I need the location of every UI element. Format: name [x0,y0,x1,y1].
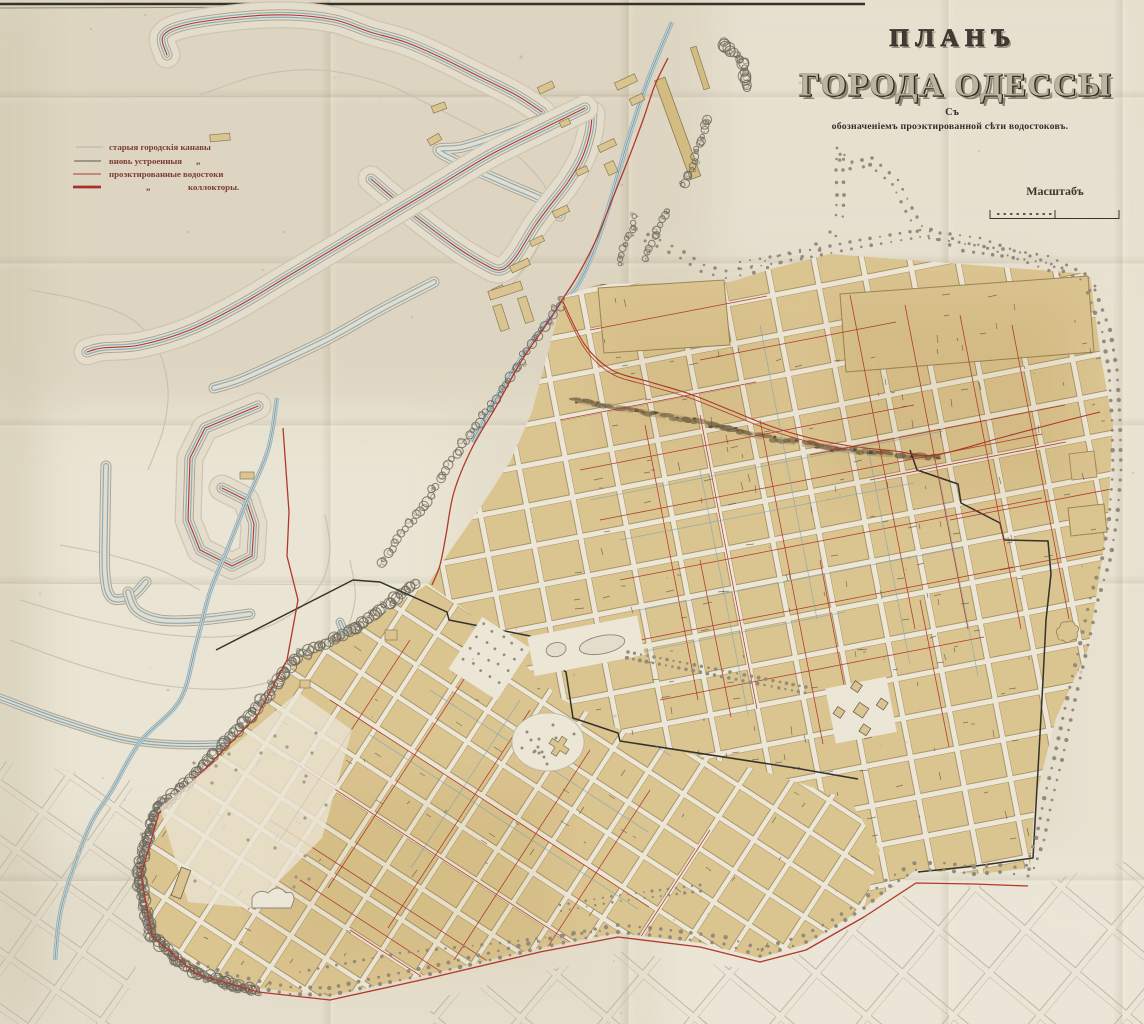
svg-text:„: „ [196,156,200,166]
svg-text:ПЛАНЪ: ПЛАНЪ [889,25,1016,52]
svg-text:Масштабъ: Масштабъ [1026,184,1084,198]
svg-text:„: „ [146,182,150,192]
svg-text:коллокторы.: коллокторы. [188,182,239,192]
svg-text:старыя городскія канавы: старыя городскія канавы [109,142,211,152]
svg-text:проэктированные водостоки: проэктированные водостоки [109,169,223,179]
svg-text:ГОРОДА ОДЕССЫ: ГОРОДА ОДЕССЫ [799,67,1112,103]
svg-text:обозначеніемъ проэктированной: обозначеніемъ проэктированной сѣти водос… [832,121,1069,132]
svg-text:вновь устроенныя: вновь устроенныя [109,156,182,166]
svg-text:Съ: Съ [945,107,959,118]
